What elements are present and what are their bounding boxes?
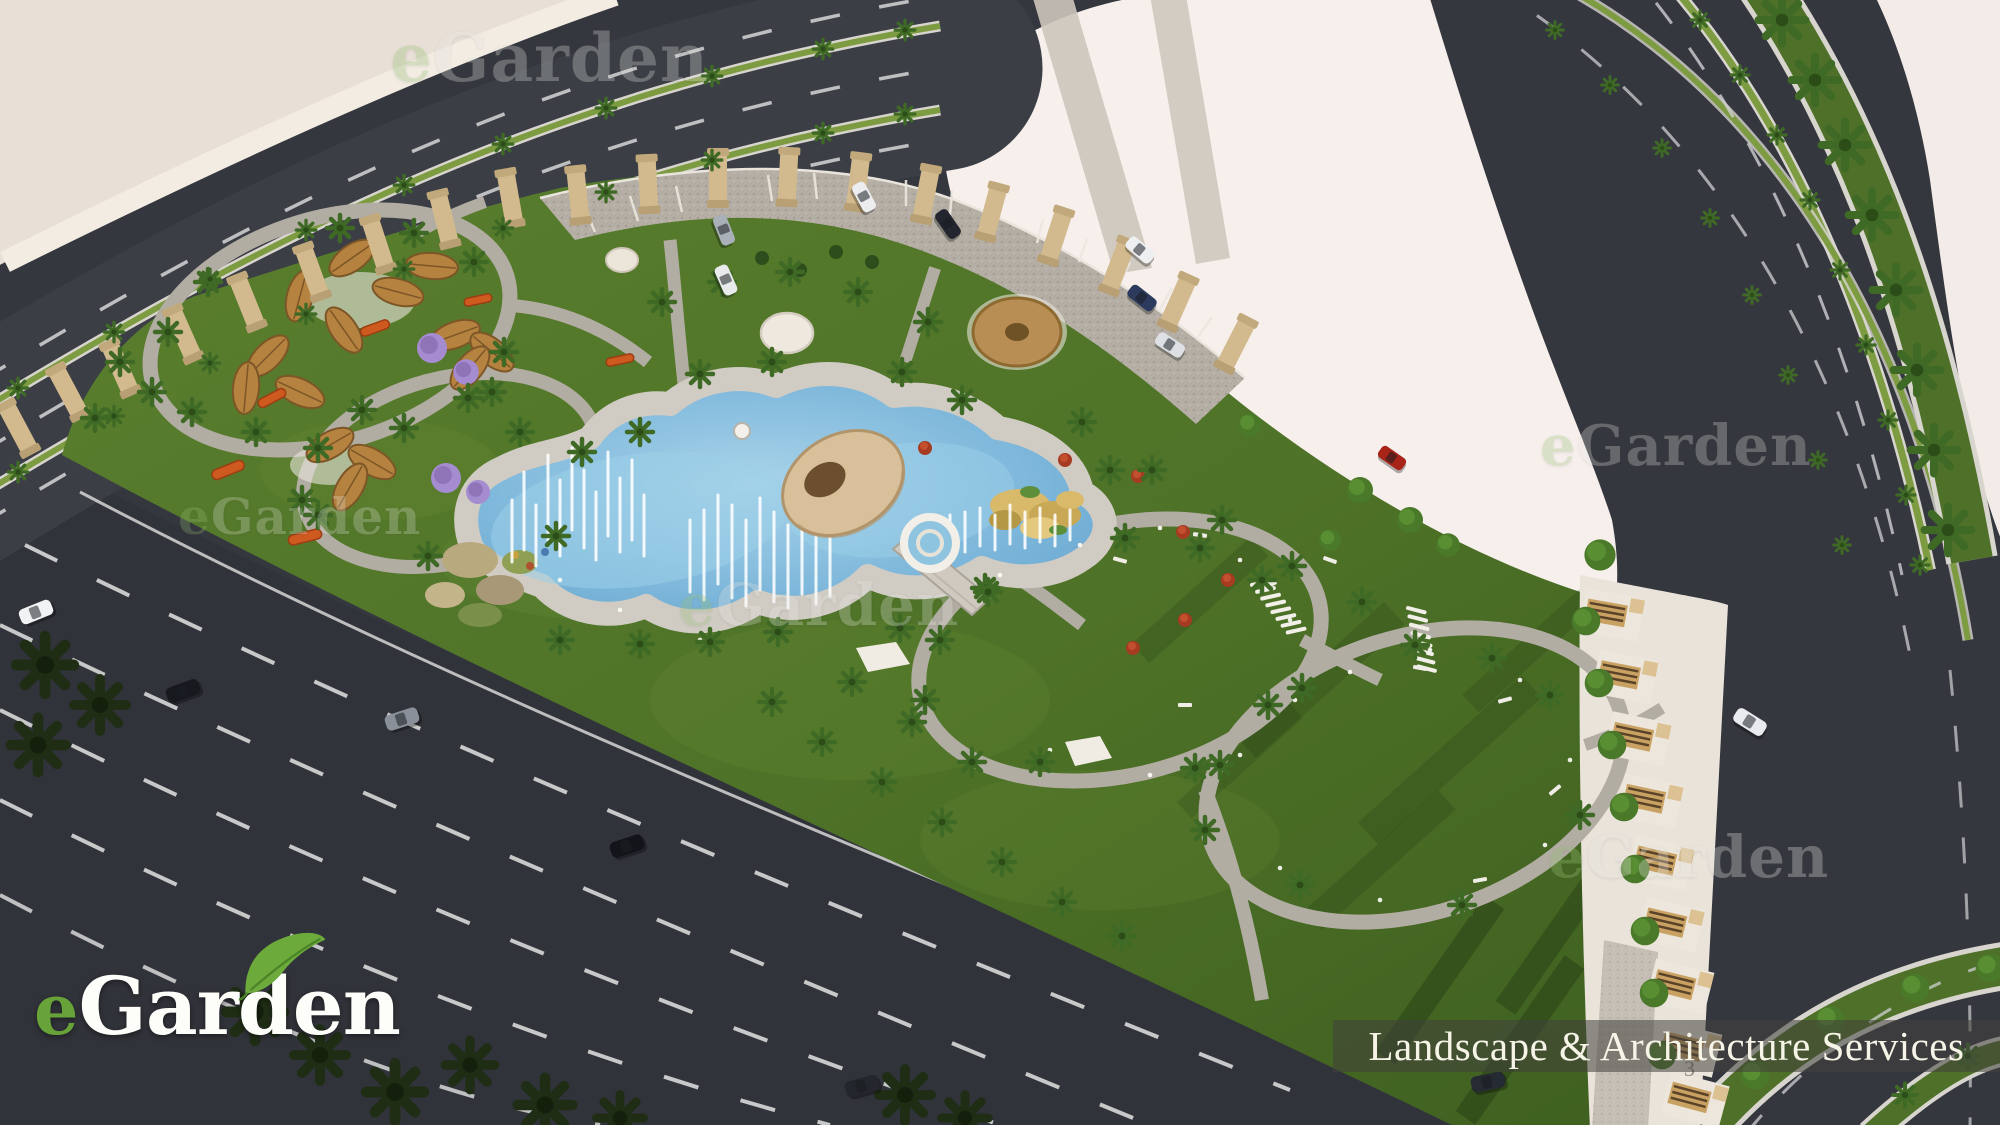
watermark-e: e bbox=[390, 19, 433, 97]
services-banner-text: Landscape & Architecture Services bbox=[1369, 1022, 1965, 1070]
ring-fountain bbox=[904, 517, 956, 569]
pool-float bbox=[734, 423, 750, 439]
watermark-egarden: eGarden bbox=[178, 492, 421, 542]
logo-letter-e: e bbox=[34, 968, 79, 1051]
watermark-rest: Garden bbox=[1577, 413, 1812, 479]
watermark-egarden: eGarden bbox=[678, 576, 959, 634]
brand-logo: eGarden bbox=[34, 966, 400, 1046]
services-banner: Landscape & Architecture Services bbox=[1333, 1020, 2000, 1072]
watermark-e: e bbox=[1540, 413, 1577, 479]
watermark-egarden: eGarden bbox=[1548, 828, 1829, 886]
watermark-e: e bbox=[1548, 823, 1586, 891]
watermark-egarden: eGarden bbox=[1540, 418, 1812, 474]
watermark-rest: Garden bbox=[1586, 823, 1829, 891]
watermark-rest: Garden bbox=[716, 571, 959, 639]
render-canvas: eGarden eGardeneGardeneGardeneGarden 3 L… bbox=[0, 0, 2000, 1125]
watermark-e: e bbox=[678, 571, 716, 639]
watermark-rest: Garden bbox=[433, 19, 709, 97]
watermark-egarden: eGarden bbox=[390, 25, 709, 91]
watermark-rest: Garden bbox=[211, 487, 422, 546]
watermark-e: e bbox=[178, 487, 211, 546]
